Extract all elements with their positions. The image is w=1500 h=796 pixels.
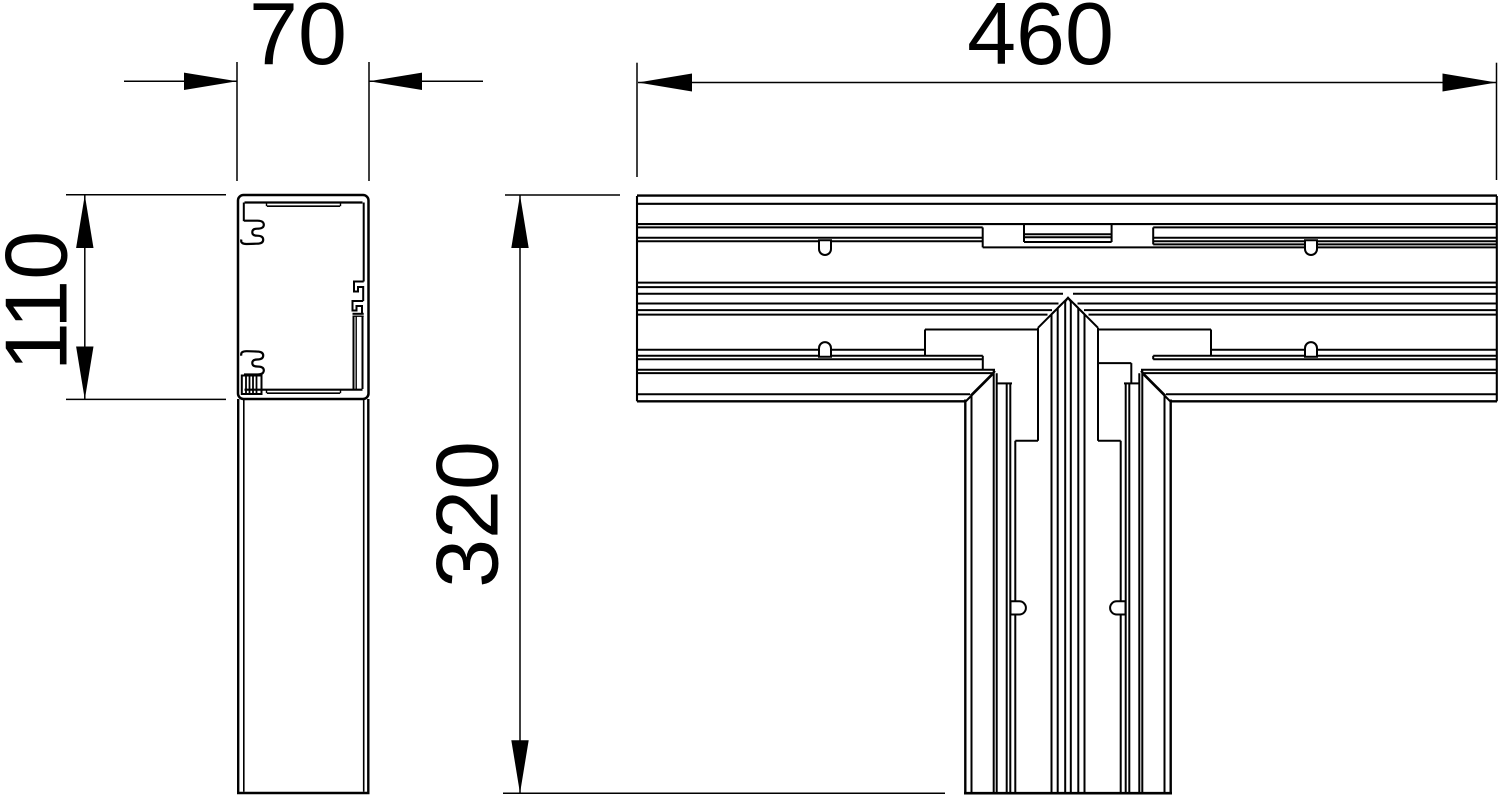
svg-text:320: 320 <box>418 441 517 588</box>
svg-text:110: 110 <box>0 231 86 371</box>
svg-text:70: 70 <box>249 0 347 83</box>
svg-text:460: 460 <box>967 0 1114 83</box>
